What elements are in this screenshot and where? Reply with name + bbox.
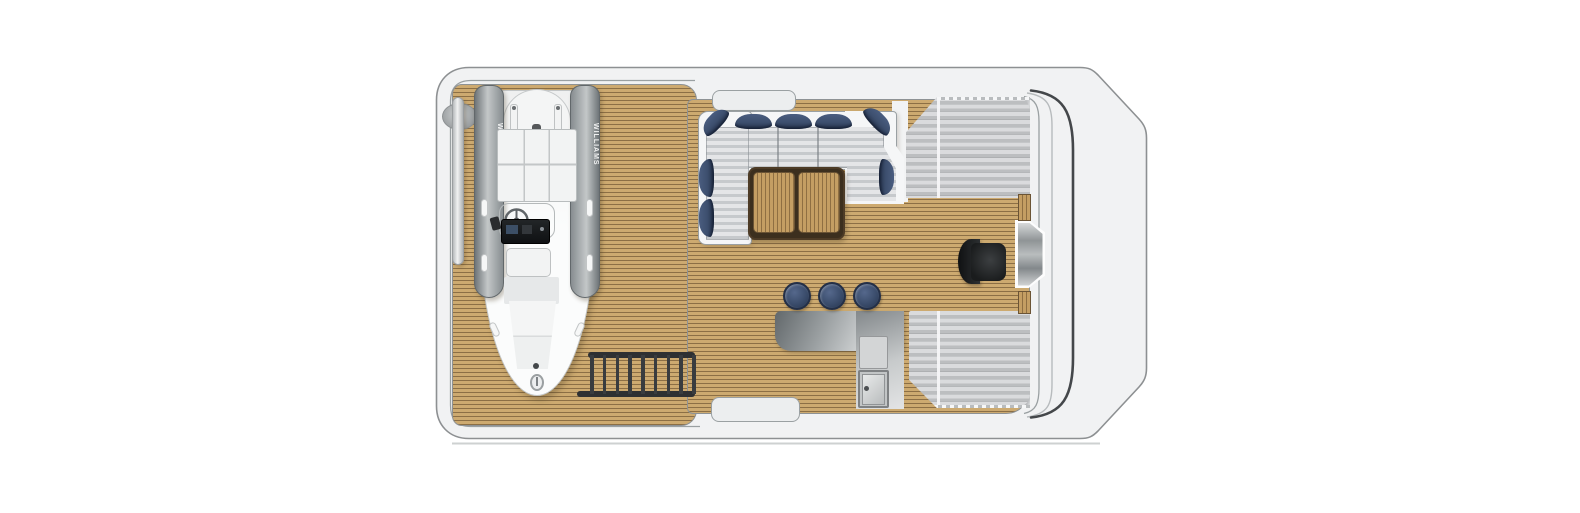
sofa-side-pillow (699, 199, 714, 237)
bar-stool (818, 282, 846, 310)
tender-handle (586, 254, 593, 272)
post-tip (556, 106, 560, 110)
tender-handle (481, 199, 488, 217)
gunwale-hatch-bottom (711, 397, 800, 422)
tender-bench-seat (506, 248, 551, 277)
table-leaf (798, 172, 840, 233)
sunpad-divider (937, 311, 940, 408)
boat-hook-pole (452, 97, 464, 265)
tender-handle (586, 199, 593, 217)
tender-floor (504, 277, 559, 304)
tender-dashboard (501, 219, 550, 244)
stairs-rung (603, 355, 607, 394)
cockpit-table (748, 167, 845, 240)
dash-screen (506, 225, 518, 234)
tender-handle (481, 254, 488, 272)
stairs-rung (679, 355, 683, 394)
bar-stool (783, 282, 811, 310)
cleat-slot (536, 377, 538, 386)
yacht-deck-plan: WILLIAMS WILLIAMS (0, 0, 1580, 513)
bar-sink (858, 370, 889, 408)
bar-stool-row (783, 282, 893, 310)
tender-nav-light (533, 363, 539, 369)
sunpad-forward-bottom (909, 311, 1030, 408)
tender-seat-module (497, 129, 577, 202)
teak-step (1018, 194, 1031, 221)
sunpad-piping (934, 405, 1030, 408)
stairs-rung (628, 355, 632, 394)
table-leaf (753, 172, 795, 233)
sunpad-piping (937, 97, 1030, 100)
cushion-seam (817, 127, 819, 168)
tender-bow-cleat (530, 374, 544, 391)
stairs-rung (692, 355, 696, 394)
stairs-rung (667, 355, 671, 394)
dash-gauge (540, 227, 544, 231)
post-tip (512, 106, 516, 110)
stairs-rung (654, 355, 658, 394)
bar-hatch (859, 336, 888, 369)
bow-console (1015, 220, 1045, 288)
stairs-rung (641, 355, 645, 394)
gunwale-hatch-top (712, 90, 796, 111)
sunpad-forward-top (906, 97, 1030, 198)
bow-console-panel (1018, 223, 1043, 286)
sofa-side-pillow (699, 159, 714, 197)
sofa-back-pillow (735, 114, 772, 129)
cushion-seam (777, 127, 779, 168)
stairs-rung (616, 355, 620, 394)
sofa-back-pillows (735, 114, 865, 130)
sunpad-divider (937, 97, 940, 198)
sink-faucet (864, 386, 869, 391)
bar-stool (853, 282, 881, 310)
helm-seat (971, 243, 1006, 281)
teak-step (1018, 291, 1031, 314)
sofa-back-pillow (815, 114, 852, 129)
dash-screen (522, 225, 532, 234)
williams-jet-tender: WILLIAMS WILLIAMS (474, 84, 600, 402)
sofa-back-pillow (775, 114, 812, 129)
